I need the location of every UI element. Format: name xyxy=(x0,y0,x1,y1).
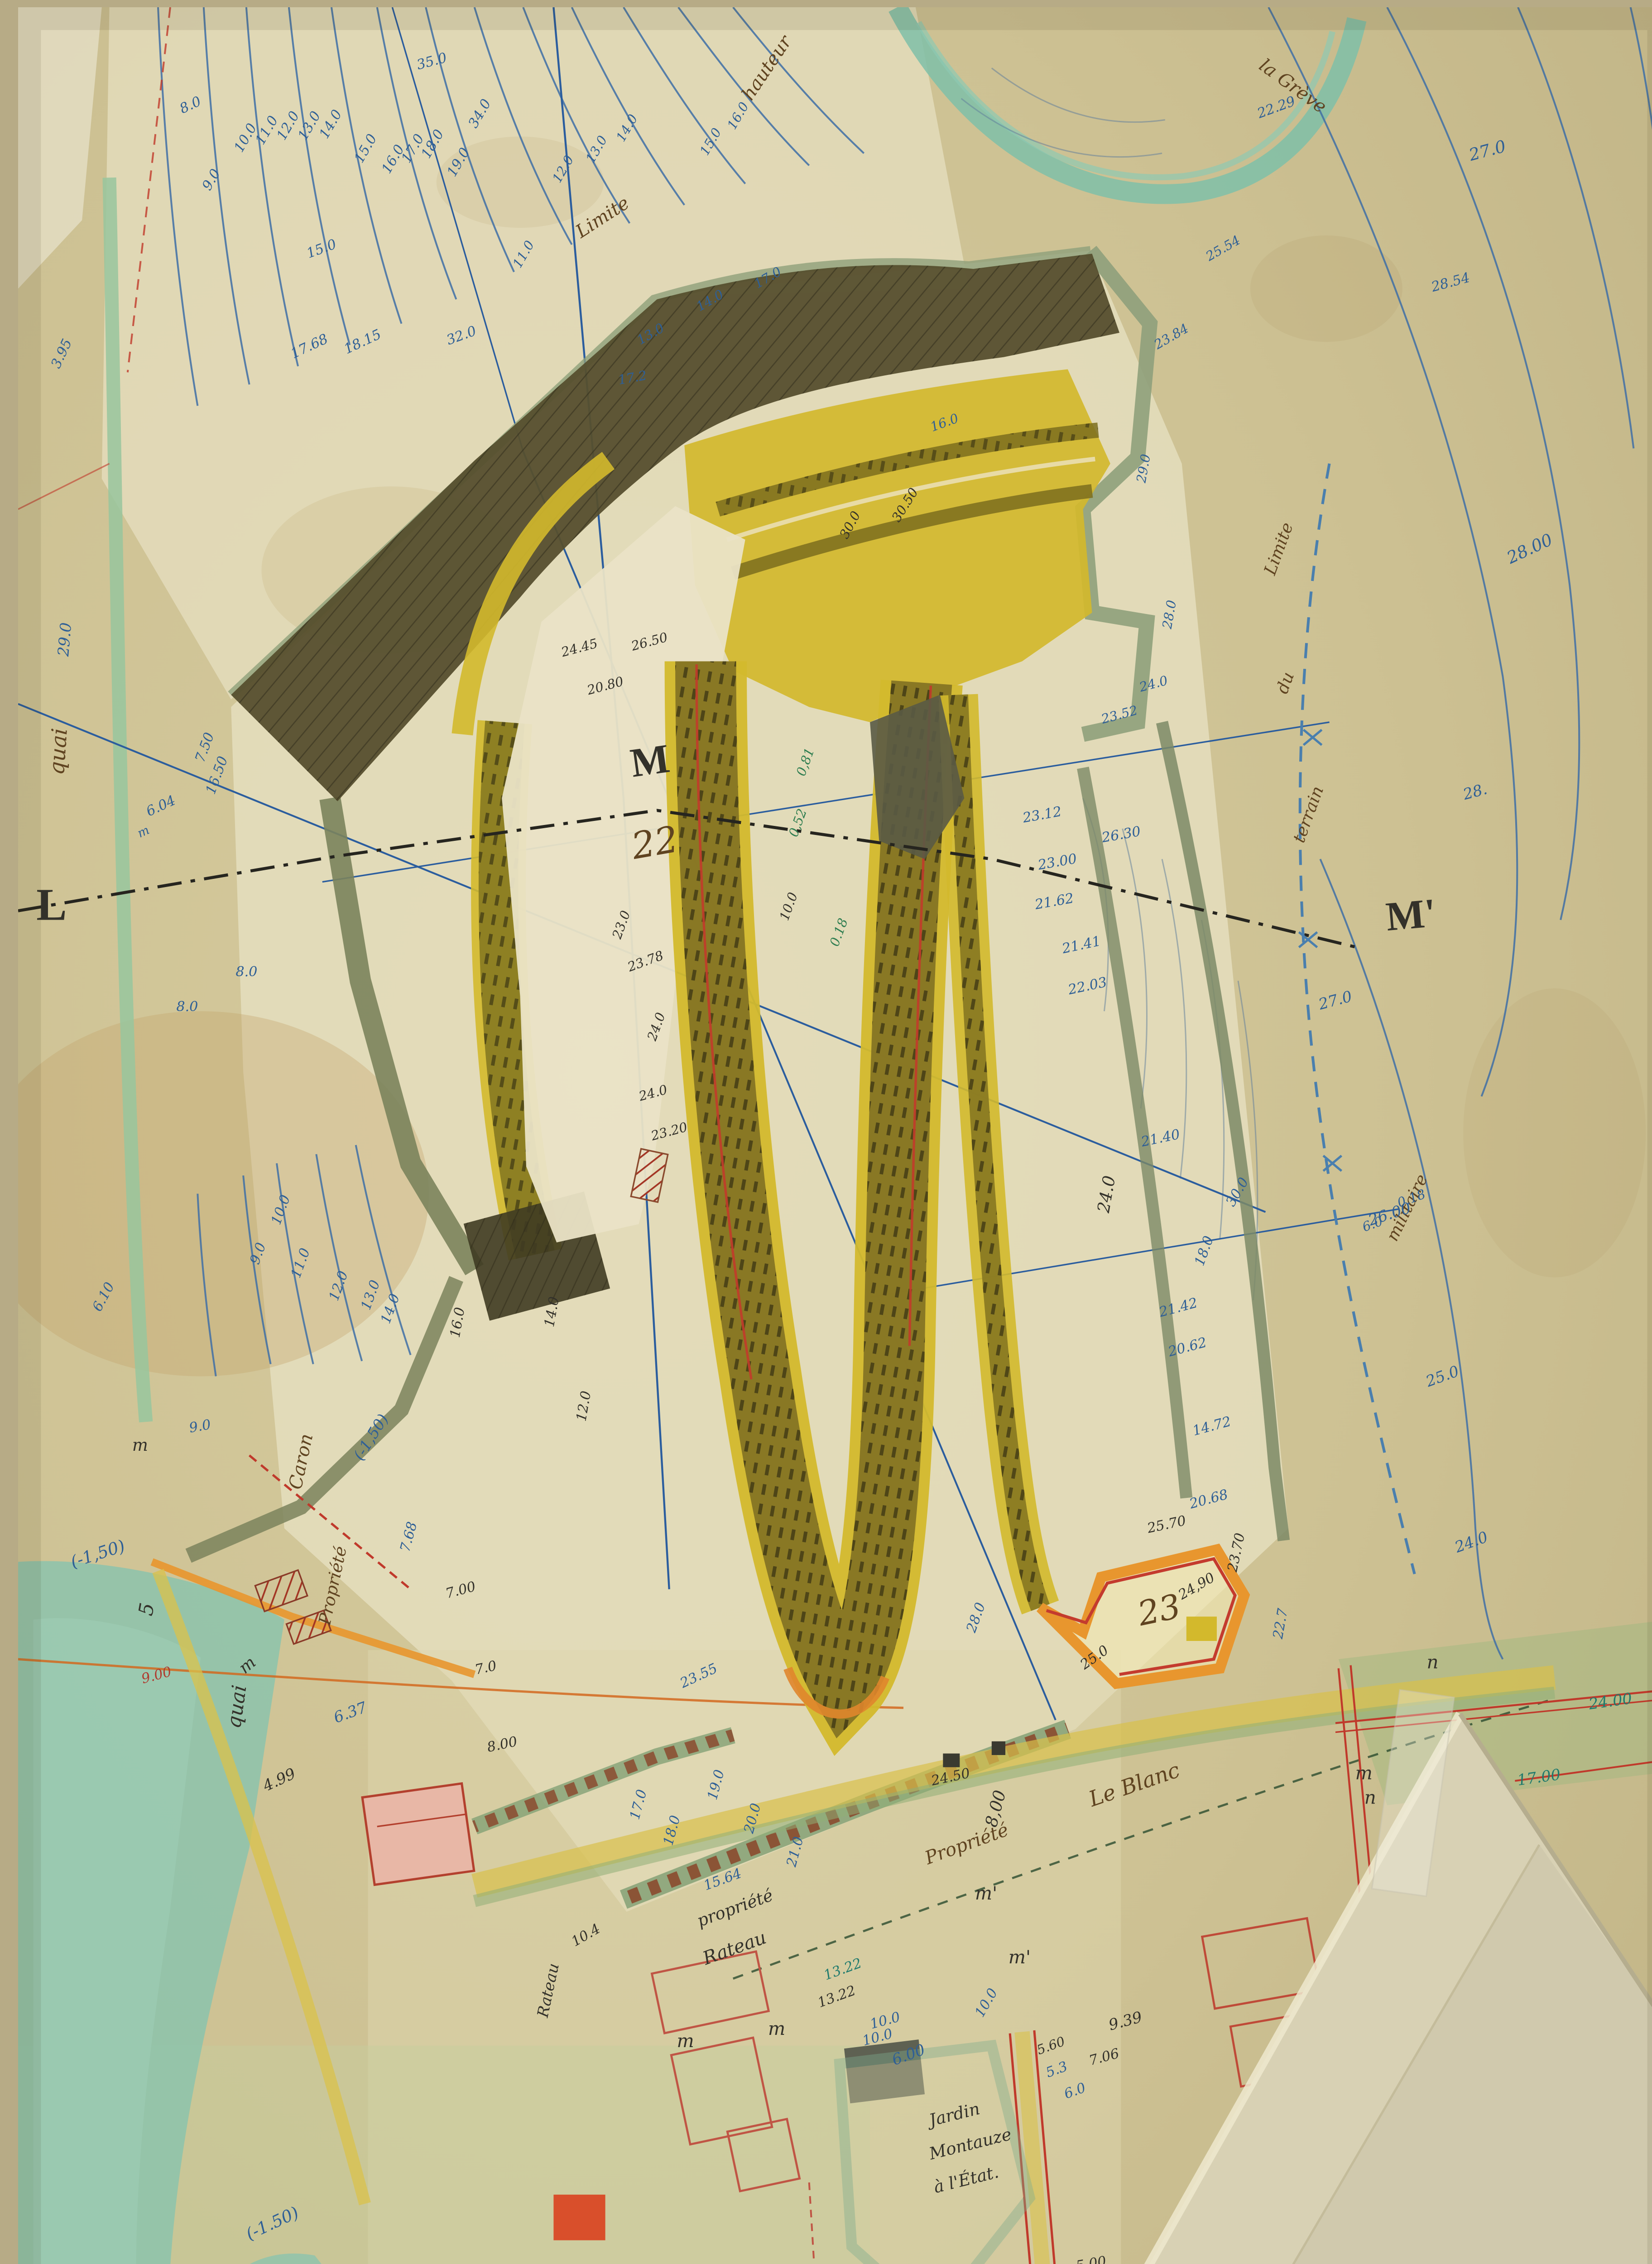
map-annotation: m xyxy=(132,1435,148,1455)
marker-M-prime: M' xyxy=(1384,890,1438,940)
map-annotation: m xyxy=(1355,1763,1373,1784)
map-annotation: m xyxy=(768,2018,785,2039)
marker-L: L xyxy=(36,879,67,930)
map-annotation: 8.0 xyxy=(235,964,257,980)
parcel-22: 22 xyxy=(628,818,682,868)
antique-map-photo: LM22M'23quaiquaimLimitehauteurla GrèveLi… xyxy=(18,7,1652,2264)
map-canvas: LM22M'23quaiquaimLimitehauteurla GrèveLi… xyxy=(18,7,1652,2264)
map-annotation: n xyxy=(1427,1651,1439,1673)
shed-2 xyxy=(992,1741,1005,1755)
map-annotation: m' xyxy=(975,1883,997,1904)
shed-1 xyxy=(943,1754,960,1767)
map-annotation: m xyxy=(677,2030,694,2052)
marker-M: M xyxy=(628,735,672,786)
map-annotation: m' xyxy=(1008,1947,1031,1968)
map-annotation: 29.0 xyxy=(54,622,75,657)
label-quai-left: quai xyxy=(44,727,72,776)
building-red-filled xyxy=(553,2195,605,2240)
map-annotation: n xyxy=(1364,1787,1376,1808)
building-pink xyxy=(362,1784,474,1885)
map-annotation: 8.0 xyxy=(176,999,198,1015)
